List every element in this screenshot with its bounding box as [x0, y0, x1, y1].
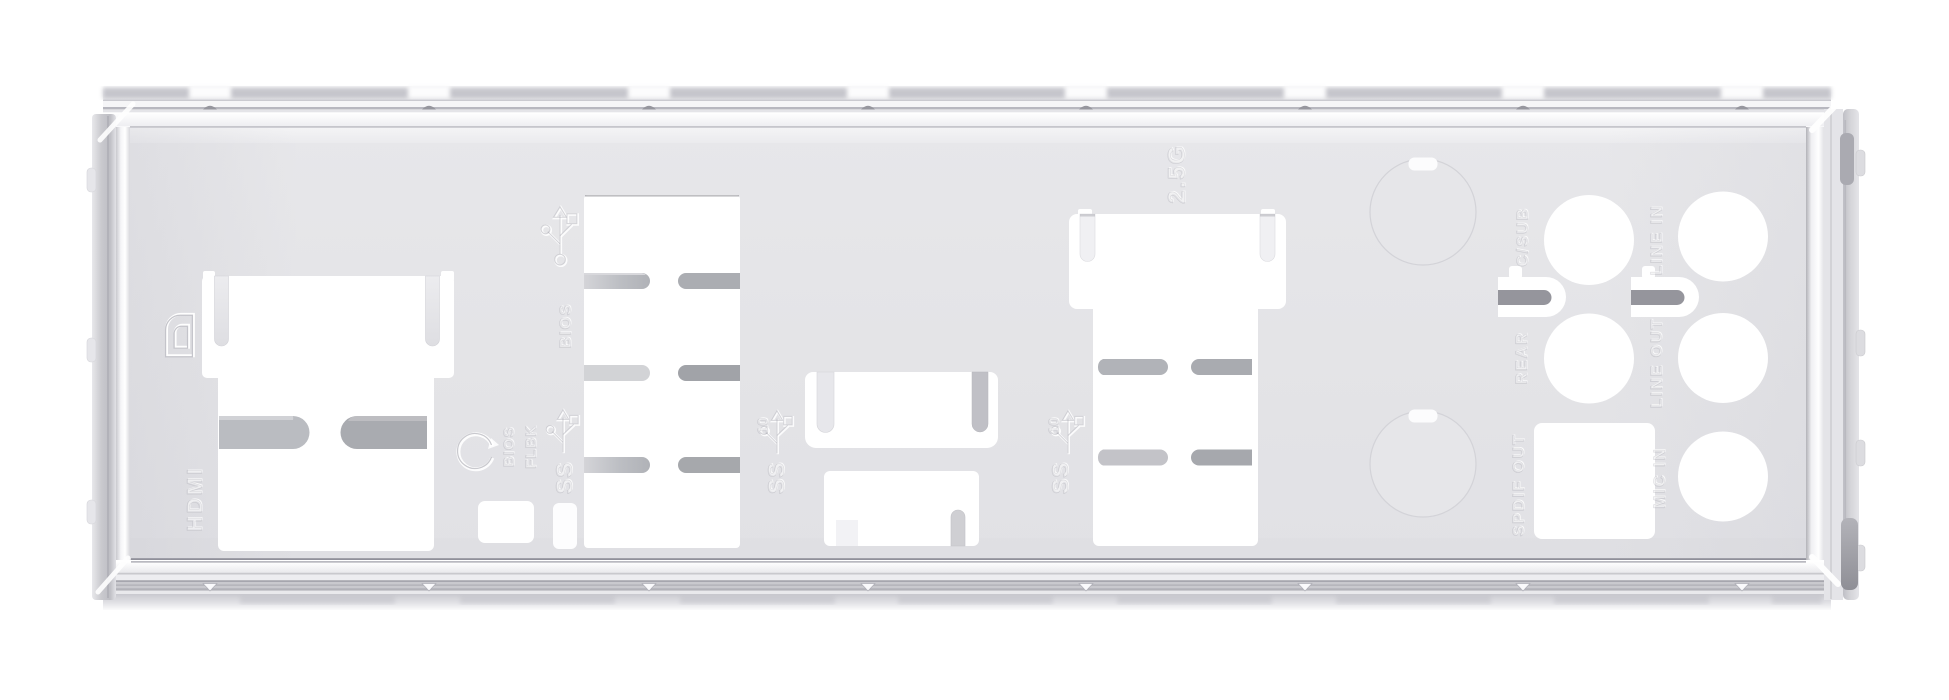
svg-text:C/SUB: C/SUB	[1515, 207, 1532, 267]
svg-text:BIOS: BIOS	[558, 303, 575, 348]
svg-text:LINE IN: LINE IN	[1649, 205, 1666, 276]
svg-text:SS: SS	[551, 462, 577, 495]
svg-text:REAR: REAR	[1514, 331, 1531, 384]
svg-text:10: 10	[755, 418, 772, 435]
svg-text:HDMI: HDMI	[184, 466, 207, 532]
svg-text:SS: SS	[1047, 462, 1073, 495]
svg-text:MIC IN: MIC IN	[1652, 447, 1669, 509]
svg-text:SS: SS	[763, 462, 789, 495]
svg-text:10: 10	[1046, 418, 1063, 435]
svg-text:BIOS: BIOS	[501, 427, 518, 468]
svg-text:FLBK: FLBK	[523, 425, 540, 469]
svg-text:LINE OUT: LINE OUT	[1649, 318, 1666, 409]
svg-text:2.5G: 2.5G	[1164, 144, 1191, 204]
svg-text:SPDIF OUT: SPDIF OUT	[1511, 433, 1528, 536]
